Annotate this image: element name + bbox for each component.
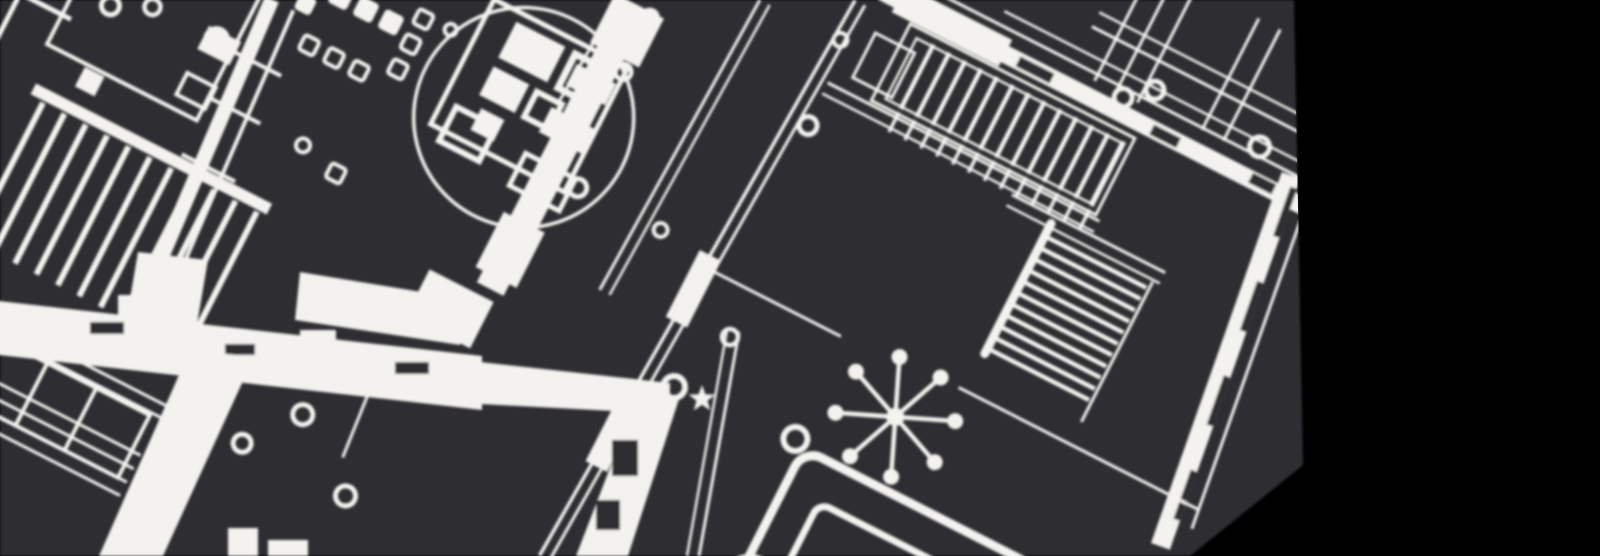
line-art xyxy=(90,322,124,334)
line-art xyxy=(300,330,336,348)
line-art xyxy=(395,362,429,374)
line-art xyxy=(596,500,620,530)
line-art xyxy=(225,344,255,355)
blueprint-canvas xyxy=(0,0,1600,556)
line-art xyxy=(126,252,208,330)
line-art xyxy=(268,540,308,556)
line-art xyxy=(118,295,160,317)
blueprint-image xyxy=(0,0,1600,556)
line-art xyxy=(228,528,258,556)
line-art xyxy=(612,440,638,476)
